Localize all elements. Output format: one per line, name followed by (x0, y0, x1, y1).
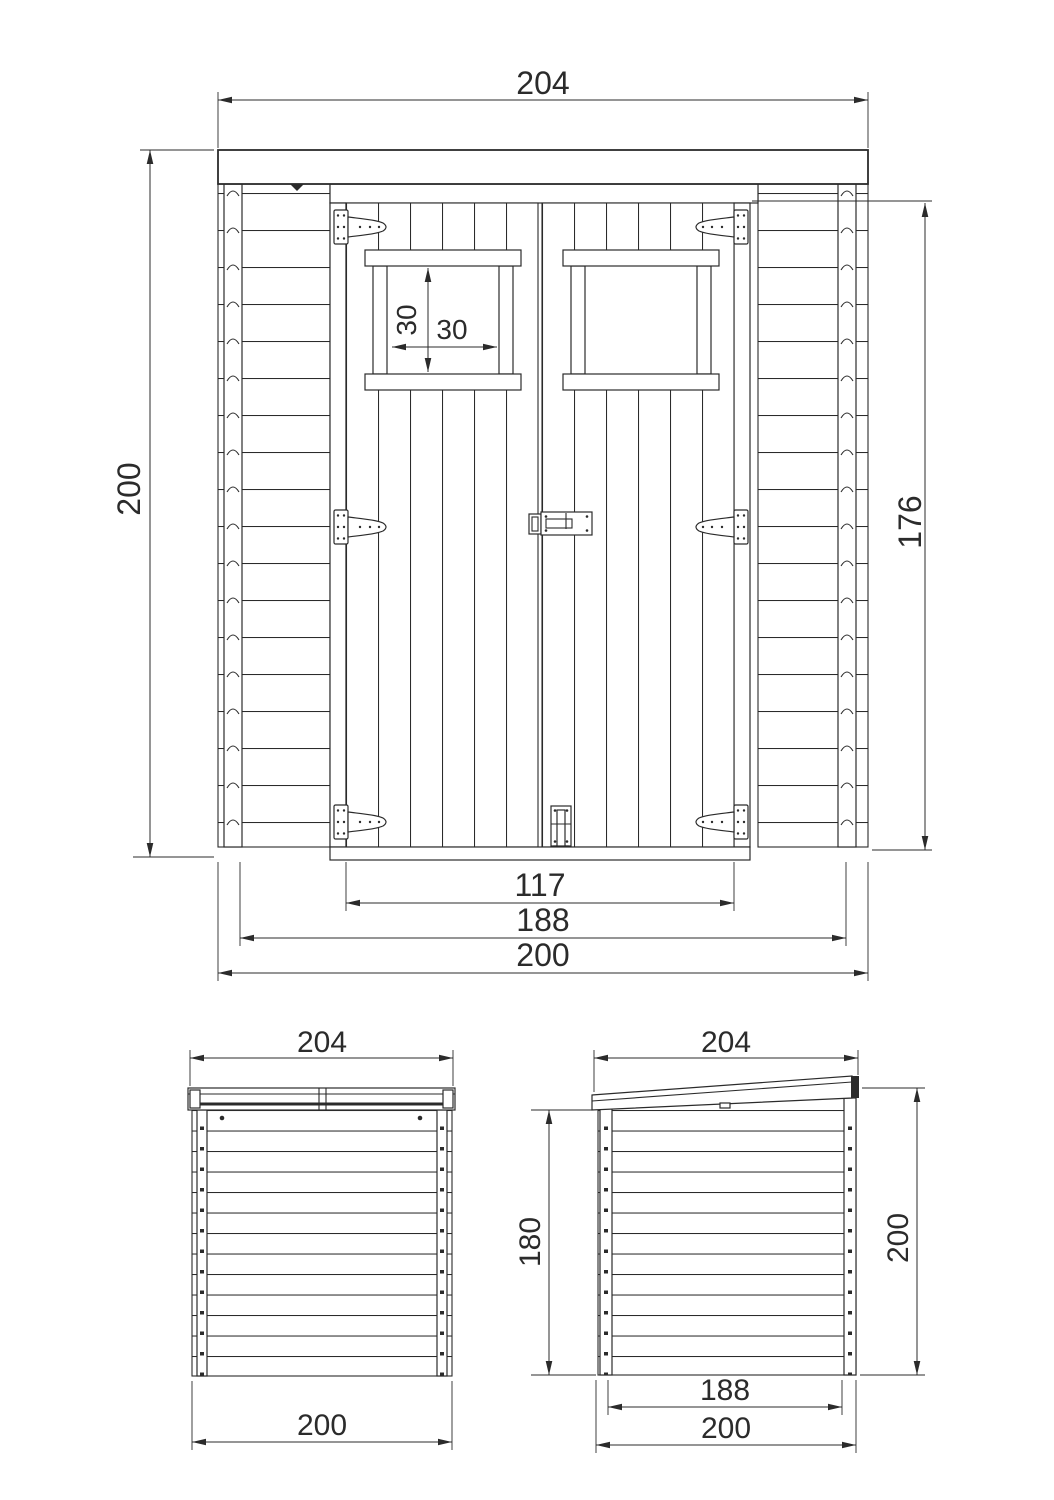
dim-label: 180 (514, 1217, 547, 1267)
dim-label: 204 (701, 1026, 751, 1059)
screw-dot (418, 1116, 423, 1121)
back-view: 204 200 (188, 1026, 455, 1450)
dim-label: 200 (882, 1213, 915, 1263)
dimension-side-height-left: 180 (514, 1110, 596, 1375)
back-roof-edge (188, 1088, 455, 1110)
roof-fascia (218, 150, 868, 184)
dimension-front-height-left: 200 (111, 150, 214, 857)
dim-label: 200 (111, 462, 147, 515)
screw-dot (220, 1116, 225, 1121)
back-right-batten (437, 1110, 447, 1376)
front-view: 204 200 176 30 30 117 (111, 65, 932, 981)
dimension-side-height-right: 200 (860, 1088, 925, 1375)
back-left-batten (197, 1110, 207, 1376)
dimension-back-base-width: 200 (192, 1381, 452, 1450)
dim-label: 188 (516, 902, 569, 938)
door-sill (330, 847, 750, 860)
dim-label: 200 (297, 1409, 347, 1442)
dim-label: 176 (892, 495, 928, 548)
dimension-front-width-top: 204 (218, 65, 868, 148)
side-left-batten (600, 1098, 612, 1375)
side-right-batten (844, 1098, 856, 1375)
shed-technical-drawing: 204 200 176 30 30 117 (0, 0, 1054, 1500)
dim-label: 200 (516, 937, 569, 973)
front-left-corner-batten (224, 184, 242, 847)
dim-label: 117 (514, 867, 565, 903)
front-right-corner-batten (838, 184, 856, 847)
dimension-side-frame-width: 188 (608, 1374, 842, 1415)
dimension-back-width-top: 204 (190, 1026, 453, 1086)
side-wall (598, 1098, 856, 1375)
dim-label: 30 (391, 304, 422, 335)
side-view: 204 180 200 188 200 (514, 1026, 925, 1453)
drawing-sheet: 204 200 176 30 30 117 (0, 0, 1054, 1500)
door-latch-icon (529, 512, 592, 535)
back-wall (192, 1110, 452, 1376)
dim-label: 200 (701, 1412, 751, 1445)
dim-label: 204 (516, 65, 569, 101)
dim-label: 188 (700, 1374, 750, 1407)
door-lintel (330, 184, 758, 203)
dim-label: 204 (297, 1026, 347, 1059)
dim-label: 30 (436, 314, 467, 345)
window-right (563, 250, 719, 390)
